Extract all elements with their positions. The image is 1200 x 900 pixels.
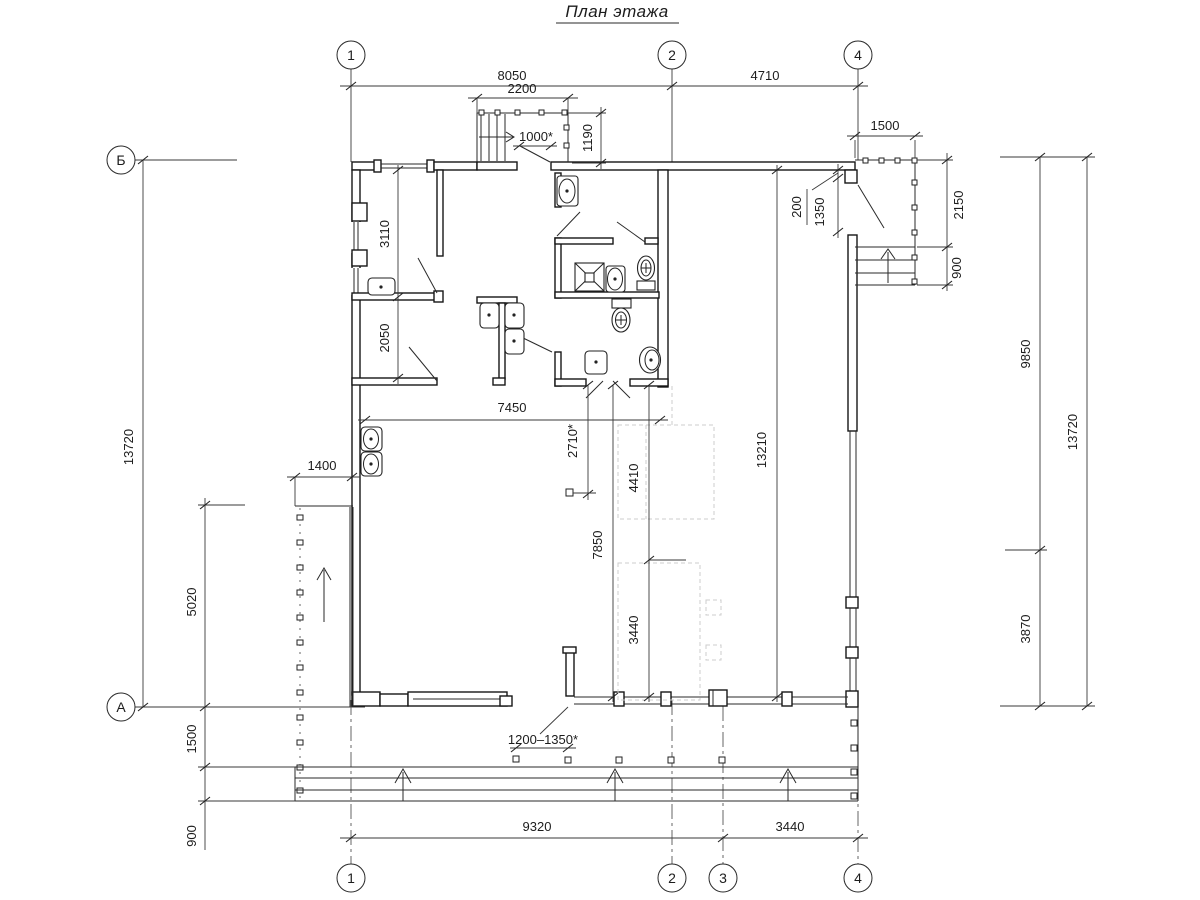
dimensions-right: 9850 3870 13720 [1000, 153, 1095, 710]
axis-label: Б [116, 152, 125, 168]
dimensions-porch: 1500 200 1350 2150 900 [789, 118, 966, 291]
dim-1500-left: 1500 [184, 725, 199, 754]
dim-1400: 1400 [308, 458, 337, 473]
axis-circle-bottom-1: 1 [337, 864, 365, 892]
dim-5020: 5020 [184, 588, 199, 617]
axis-circle-bottom-4: 4 [844, 864, 872, 892]
axis-label: 4 [854, 47, 862, 63]
dim-13720-left: 13720 [121, 429, 136, 465]
axis-circle-left-a: А [107, 693, 135, 721]
dim-2710: 2710* [565, 424, 580, 458]
axis-circle-left-b: Б [107, 146, 135, 174]
dim-3110: 3110 [377, 220, 392, 248]
sink [557, 176, 578, 206]
sink [480, 303, 499, 328]
dim-4410: 4410 [626, 464, 641, 493]
dim-3440-hall: 3440 [626, 616, 641, 645]
sink [640, 347, 661, 373]
axis-circle-bottom-3: 3 [709, 864, 737, 892]
dim-4710: 4710 [751, 68, 780, 83]
dim-9850: 9850 [1018, 340, 1033, 369]
dim-9320: 9320 [523, 819, 552, 834]
sink [368, 278, 395, 295]
shower-tray [575, 263, 604, 291]
toilet [612, 299, 631, 332]
sink [361, 427, 382, 451]
sink [505, 303, 524, 328]
axis-circle-top-4: 4 [844, 41, 872, 69]
axis-circle-top-2: 2 [658, 41, 686, 69]
axis-label: 2 [668, 47, 676, 63]
ramp [295, 506, 353, 800]
dim-2150: 2150 [951, 191, 966, 220]
dim-200: 200 [789, 196, 804, 218]
dim-1190: 1190 [580, 124, 595, 152]
dimensions-bottom: 1200–1350* 9320 3440 [340, 707, 868, 842]
dim-1000: 1000* [519, 129, 553, 144]
drawing-title: План этажа [565, 2, 668, 21]
dimensions-top: 8050 4710 2200 1000* 1190 [340, 68, 868, 169]
axis-label: А [116, 699, 126, 715]
dim-2050: 2050 [377, 324, 392, 353]
dim-2200: 2200 [508, 81, 537, 96]
bathroom-fixtures [361, 176, 661, 476]
dim-13720-right: 13720 [1065, 414, 1080, 450]
sink [606, 266, 625, 292]
axis-label: 1 [347, 870, 355, 886]
dim-900-left: 900 [184, 825, 199, 847]
dim-1200-1350: 1200–1350* [508, 732, 578, 747]
side-porch [855, 158, 917, 285]
dimensions-interior: 3110 2050 7450 2710* 7850 4410 3440 1321… [358, 165, 782, 702]
dim-7850: 7850 [590, 531, 605, 560]
dim-3440-bottom: 3440 [776, 819, 805, 834]
terrace [295, 707, 858, 801]
dim-1500-porch: 1500 [871, 118, 900, 133]
axis-label: 4 [854, 870, 862, 886]
counter-dashed-outline [618, 386, 721, 700]
dimensions-left: 13720 1400 5020 1500 900 [121, 156, 360, 850]
sink [361, 452, 382, 476]
floor-plan-page: План этажа 1 2 4 Б А [0, 0, 1200, 900]
dim-13210: 13210 [754, 432, 769, 468]
dim-7450: 7450 [498, 400, 527, 415]
toilet [637, 256, 655, 290]
axis-circle-bottom-2: 2 [658, 864, 686, 892]
floor-plan-drawing: План этажа 1 2 4 Б А [0, 0, 1200, 900]
dim-1350: 1350 [812, 198, 827, 227]
axis-label: 2 [668, 870, 676, 886]
sink [505, 329, 524, 354]
dim-3870: 3870 [1018, 615, 1033, 644]
axis-label: 1 [347, 47, 355, 63]
axis-circle-top-1: 1 [337, 41, 365, 69]
dim-900-porch: 900 [949, 257, 964, 279]
sink [585, 351, 607, 374]
axis-label: 3 [719, 870, 727, 886]
